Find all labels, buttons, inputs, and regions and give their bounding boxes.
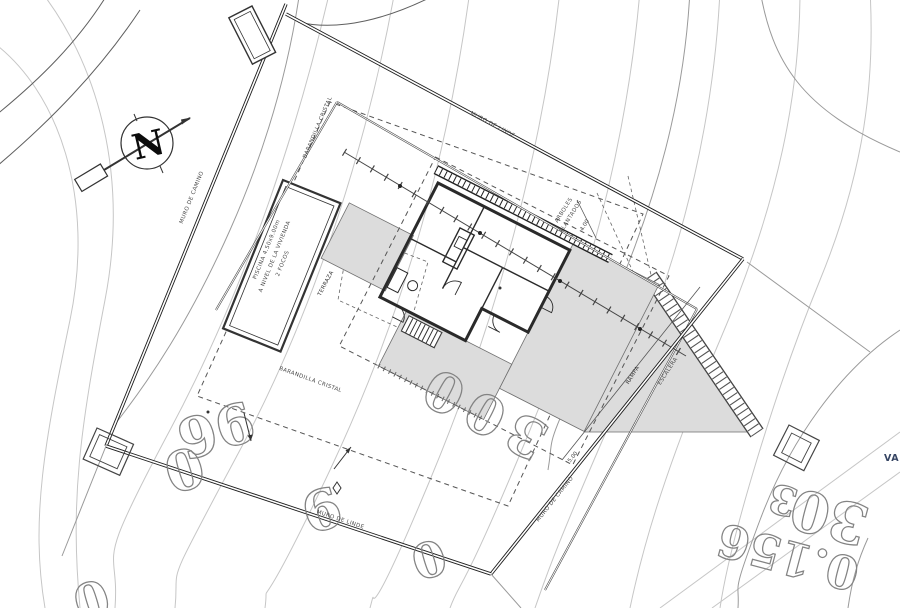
survey-point [207, 411, 210, 414]
parcel-numeral: 0 [405, 527, 453, 590]
hedge-post [558, 279, 562, 283]
site-plan-drawing: PISCINA 4.50x9.00m A NIVEL DE LA VIVIEND… [0, 0, 900, 608]
north-arrow-tail [75, 164, 108, 191]
utility-structure-right [774, 425, 820, 471]
label-va-partial: VA [884, 453, 899, 464]
parcel-numeral: 9 [294, 473, 350, 546]
north-arrow: N [75, 114, 191, 191]
bath-fixture [406, 279, 419, 292]
label-muro-camino-right: MURO DE CAMINO [535, 475, 575, 523]
label-muro-camino-left: MURO DE CAMINO [179, 170, 206, 225]
site-plan-canvas: PISCINA 4.50x9.00m A NIVEL DE LA VIVIEND… [0, 0, 900, 608]
hedge-post [398, 184, 402, 188]
survey-point [499, 287, 502, 290]
label-barandilla-1: BARANDILLA CRISTAL [302, 95, 334, 159]
parcel-numeral: 0 [66, 567, 117, 608]
label-terraza: TERRAZA [317, 270, 336, 298]
label-barandilla-2: BARANDILLA CRISTAL [278, 366, 343, 395]
hedge-post [638, 327, 642, 331]
boundary-walls [62, 4, 870, 608]
north-arrow-head [181, 118, 191, 125]
north-arrow-tick [160, 166, 163, 173]
north-letter: N [128, 122, 168, 169]
parcel-numerals: 96 0 9 300 0 0 0.156 30 3 [66, 351, 875, 608]
dim-5-00: 5.00 [567, 450, 580, 464]
gate-structure-top [229, 6, 276, 64]
label-muro-linde-top: MURO DE LINDE [469, 111, 516, 140]
hedge-post [478, 231, 482, 235]
